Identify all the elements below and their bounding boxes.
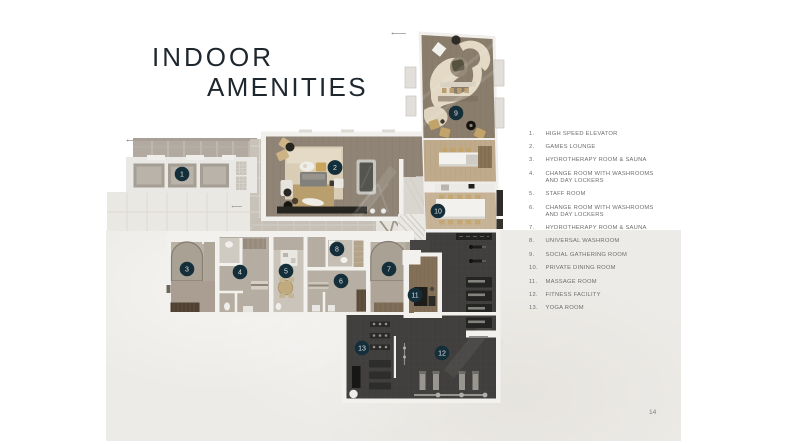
svg-text:4: 4: [238, 270, 242, 277]
svg-text:12: 12: [438, 351, 446, 358]
svg-text:6: 6: [339, 279, 343, 286]
svg-text:1: 1: [180, 172, 184, 179]
svg-text:5: 5: [284, 269, 288, 276]
svg-text:10: 10: [434, 209, 442, 216]
svg-text:8: 8: [335, 247, 339, 254]
svg-text:7: 7: [387, 267, 391, 274]
svg-text:9: 9: [454, 111, 458, 118]
svg-text:2: 2: [333, 165, 337, 172]
svg-text:11: 11: [411, 293, 418, 300]
svg-text:3: 3: [185, 267, 189, 274]
svg-text:13: 13: [358, 346, 366, 353]
